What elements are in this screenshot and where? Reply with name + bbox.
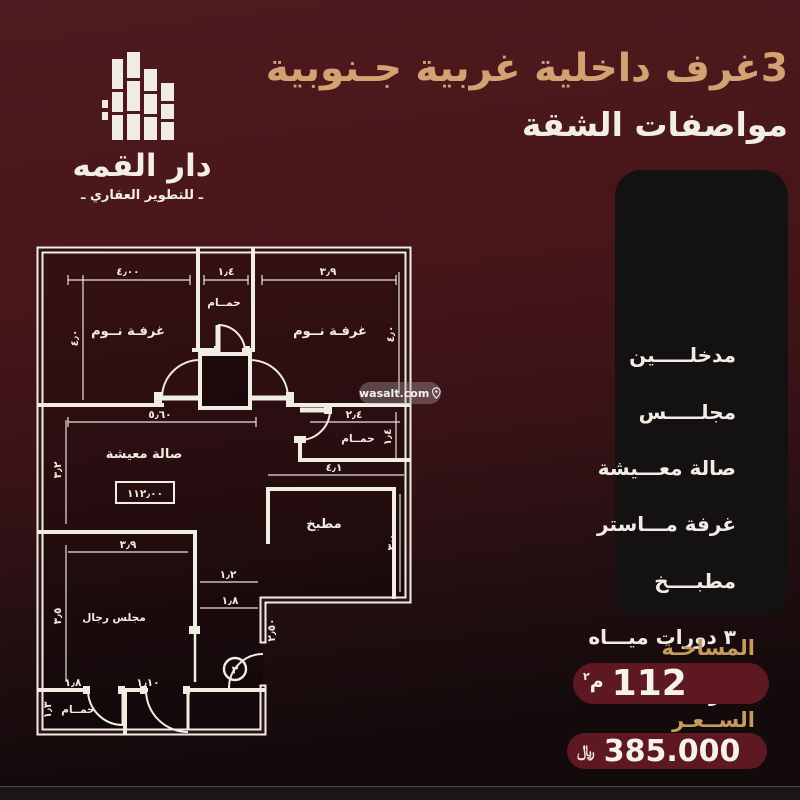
area-unit: م٢: [583, 670, 604, 692]
dimension-label: ٣٫٢: [52, 461, 64, 478]
dimension-label: ٤٫٠: [385, 326, 397, 343]
room-label: مطبخ: [306, 517, 341, 532]
floor-plan: غرفـة نــوم حمــام غرفـة نــوم صالة معيش…: [28, 242, 420, 767]
dimension-label: ٣٫٩: [320, 266, 337, 278]
headline: 3غرف داخلية غربية جـنوبية مواصفات الشقة: [228, 48, 788, 144]
features-panel: مدخلـــــين مجلـــــس صالة معـــيشة غرفة…: [615, 170, 788, 616]
location-pin-icon: [432, 387, 441, 399]
room-label: حمــام: [61, 704, 94, 716]
watermark-text: wasalt.com: [359, 387, 429, 400]
dimension-label: ١٫١٠: [136, 677, 159, 689]
dimension-label: ٤٫١: [326, 462, 343, 474]
door-number: ٣: [232, 665, 239, 677]
room-label: غرفـة نــوم: [293, 324, 367, 339]
dimension-label: ١٫٤: [218, 266, 235, 278]
company-logo: دار القمه ـ للتطوير العقاري ـ: [56, 52, 228, 203]
area-value: 112: [612, 663, 687, 704]
watermark: wasalt.com: [359, 382, 441, 404]
dimension-label: ١٫٣: [42, 701, 54, 718]
dimension-label: ١٫٢: [220, 569, 237, 581]
logo-tagline: ـ للتطوير العقاري ـ: [56, 188, 228, 203]
price-value-pill: 385.000 ﷼: [567, 733, 767, 769]
feature-item: غرفة مـــاستر: [597, 512, 736, 536]
room-label: مجلس رجال: [82, 612, 146, 624]
dimension-label: ٢٫٤: [346, 409, 363, 421]
bottom-strip: [0, 786, 800, 800]
dimension-label: ٥٫٦٠: [148, 409, 171, 421]
price-value: 385.000: [604, 734, 741, 769]
logo-name: دار القمه: [56, 148, 228, 184]
buildings-skyline-icon: [101, 52, 183, 140]
dimension-label: ٣٫٩: [120, 539, 137, 551]
room-label: غرفـة نــوم: [91, 324, 165, 339]
area-box-value: ١١٢٫٠٠: [127, 488, 163, 500]
feature-item: مجلـــــس: [639, 400, 736, 424]
feature-item: مدخلـــــين: [629, 343, 736, 367]
room-label: حمــام: [341, 433, 374, 445]
room-label: حمــام: [207, 297, 240, 309]
feature-item: صالة معـــيشة: [598, 456, 736, 480]
page-title: 3غرف داخلية غربية جـنوبية: [228, 48, 788, 91]
dimension-label: ١٫٤: [382, 429, 394, 446]
dimension-label: ٣٫٠: [386, 534, 398, 551]
dimension-label: ١٫٨: [65, 677, 82, 689]
page-subtitle: مواصفات الشقة: [274, 105, 788, 144]
area-label: المساحـة: [662, 636, 755, 660]
dimension-label: ٤٫٠: [69, 330, 81, 347]
price-label: الســعـر: [672, 708, 755, 732]
dimension-label: ٣٫٥: [52, 608, 64, 625]
feature-item: مطبــــخ: [654, 569, 736, 593]
poster: 3غرف داخلية غربية جـنوبية مواصفات الشقة …: [0, 0, 800, 800]
area-value-pill: 112 م٢: [573, 663, 769, 704]
dimension-label: ٢٫٥٠: [266, 618, 278, 641]
dimension-label: ٤٫٠٠: [116, 266, 139, 278]
dimension-label: ١٫٨: [222, 595, 239, 607]
saudi-riyal-icon: ﷼: [577, 741, 595, 761]
room-label: صالة معيشة: [106, 447, 183, 462]
